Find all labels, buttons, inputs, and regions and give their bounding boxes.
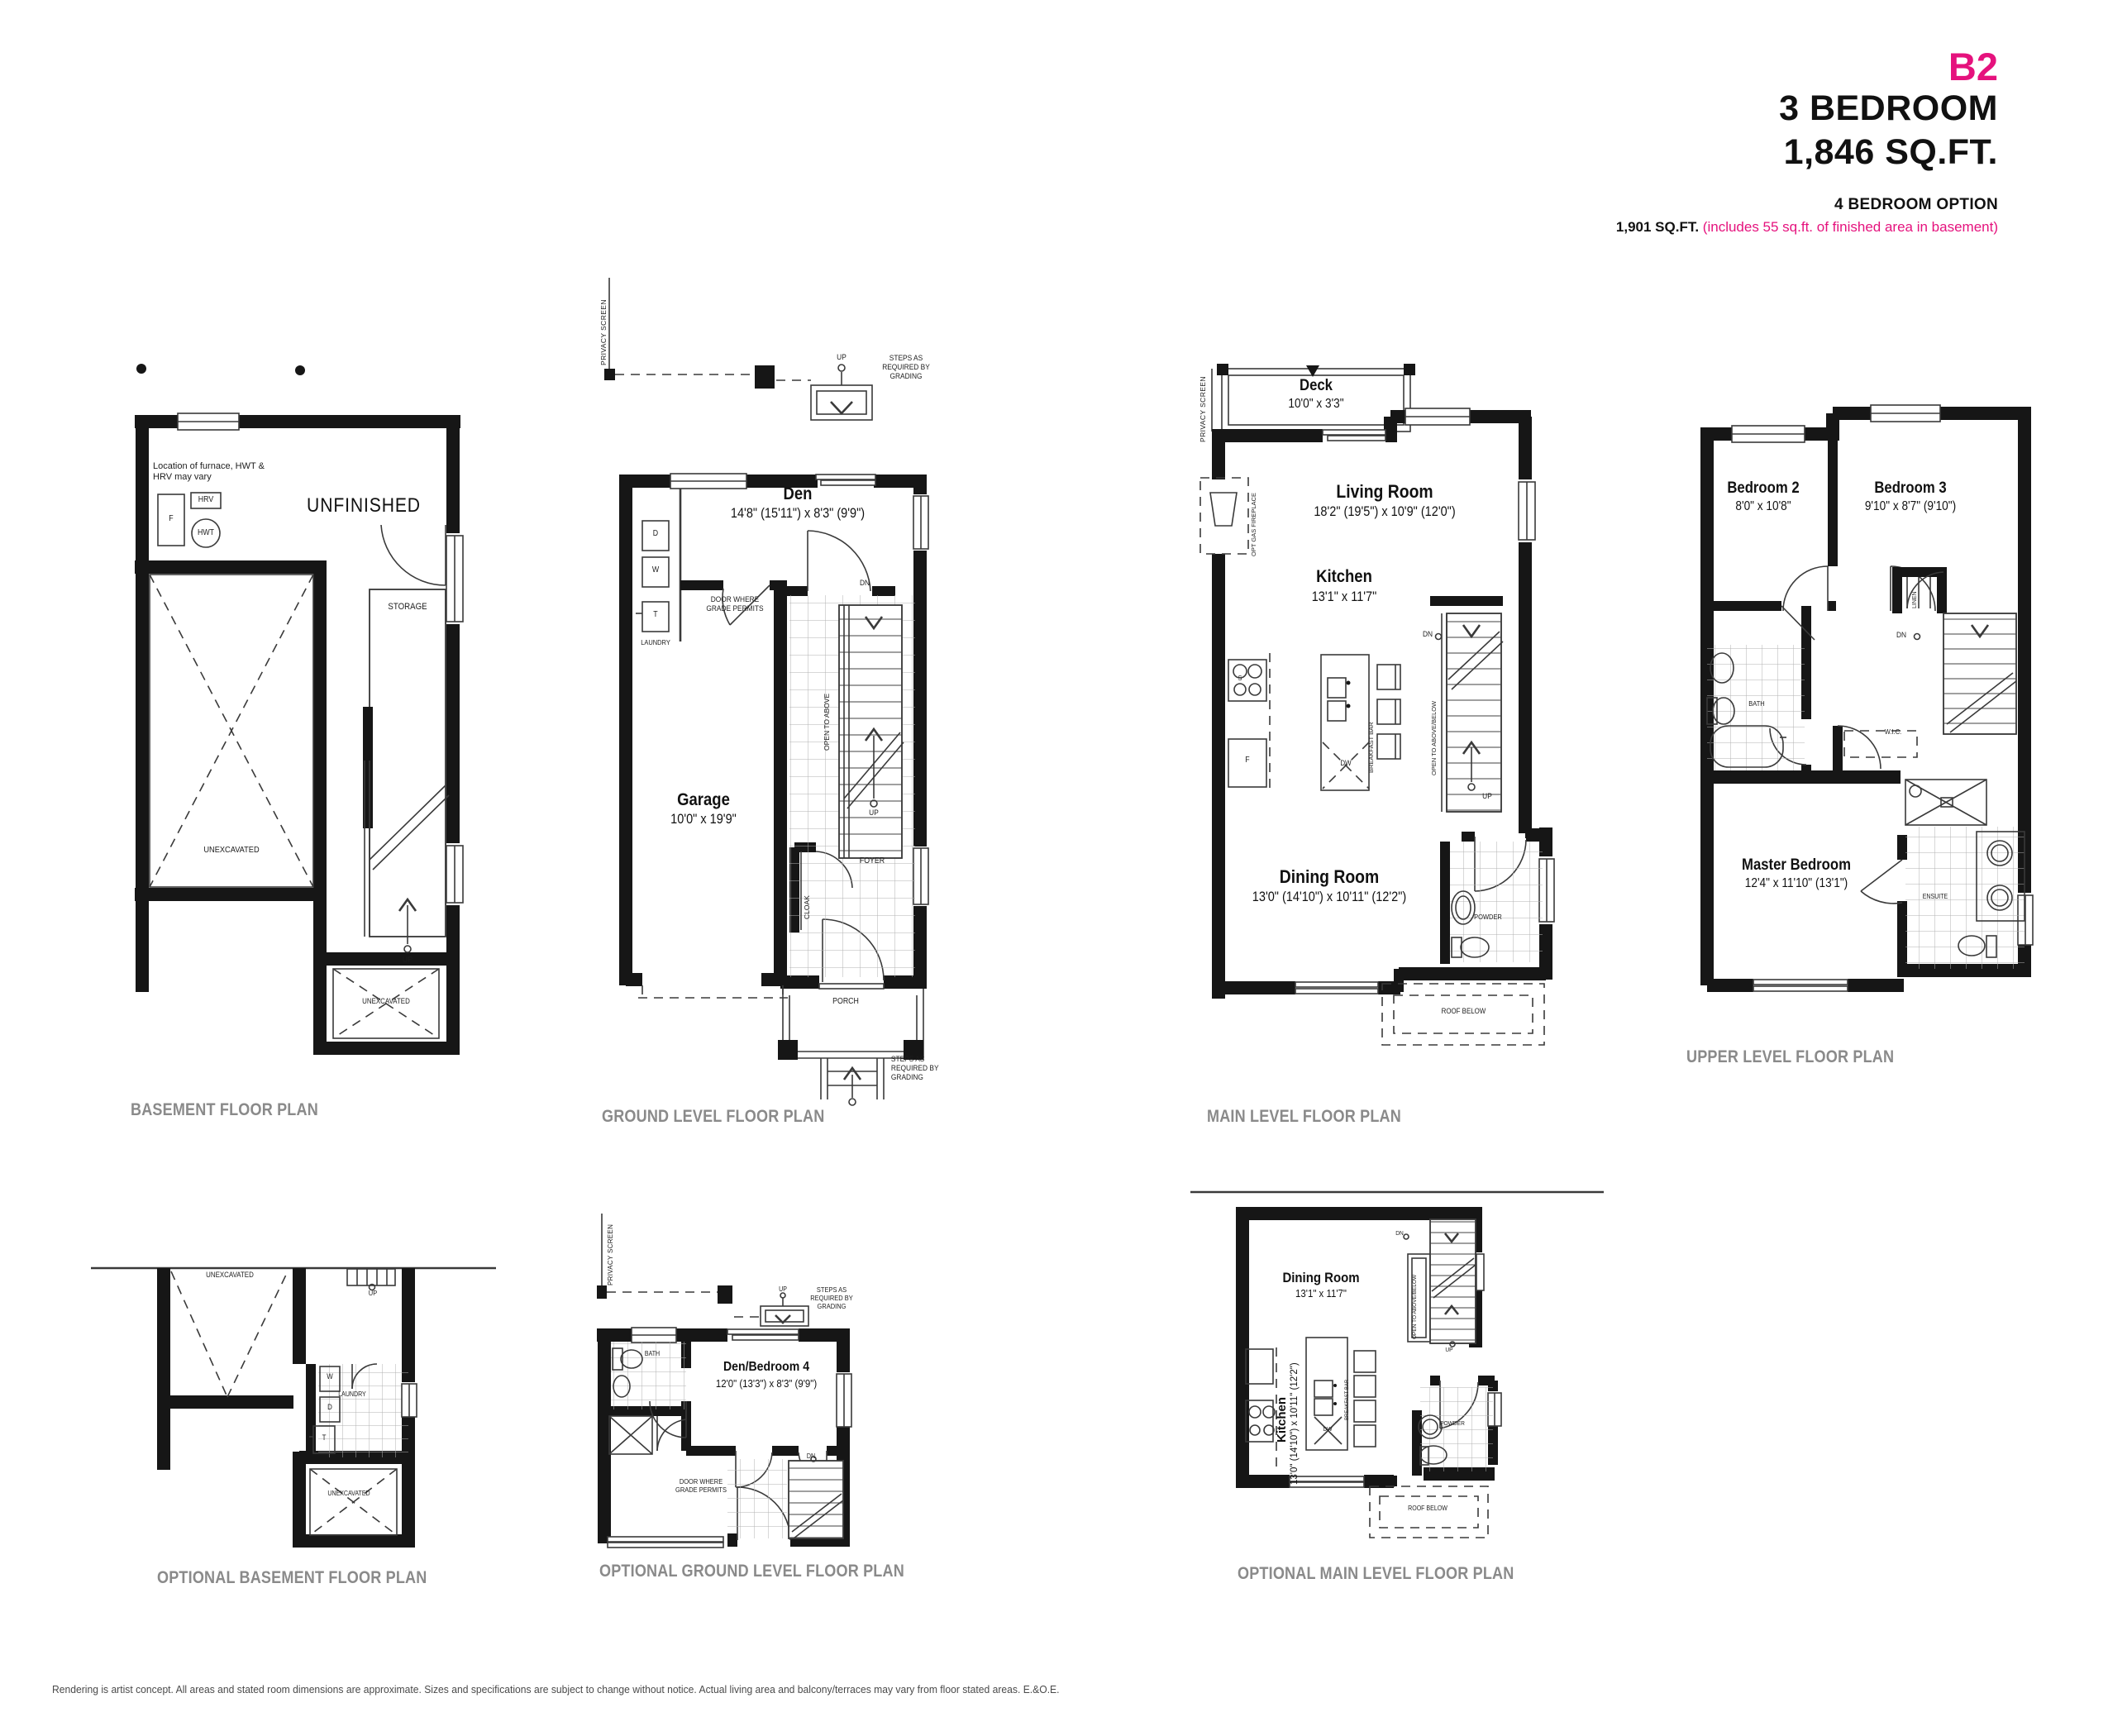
- optional-basement-floor-plan: UNEXCAVATED UP W D T LAUNDRY UNEXCAVATED: [91, 1266, 496, 1589]
- den-dims: 14'8" (15'11") x 8'3" (9'9"): [689, 506, 907, 522]
- dining-room-dims: 13'1" x 11'7": [1212, 1287, 1430, 1300]
- bedroom-count: 3 BEDROOM: [1616, 87, 1998, 130]
- privacy-screen-label: PRIVACY SCREEN: [599, 299, 608, 365]
- dishwasher-label: DW: [1336, 759, 1357, 767]
- unexcavated-upper-label: UNEXCAVATED: [193, 1271, 266, 1279]
- kitchen-dims: 13'1" x 11'7": [1235, 589, 1453, 605]
- dining-room-dims: 13'0" (14'10") x 10'11" (12'2"): [1220, 889, 1438, 905]
- steps-grading-label-bottom: STEPS AS REQUIRED BY GRADING: [891, 1055, 951, 1083]
- opt-main-plan-title: OPTIONAL MAIN LEVEL FLOOR PLAN: [1238, 1563, 1514, 1584]
- dryer-label: D: [644, 529, 667, 538]
- stairs-up: [347, 1269, 395, 1290]
- foyer-label: FOYER: [851, 856, 894, 866]
- upper-level-floor-plan: Bedroom 2 8'0" x 10'8" Bedroom 3 9'10" x…: [1699, 397, 2038, 1033]
- open-above-below-label: OPEN TO ABOVE/BELOW: [1412, 1275, 1418, 1339]
- fireplace: [1200, 478, 1248, 554]
- entry-steps: [761, 1293, 808, 1326]
- pin-dots: [136, 364, 305, 375]
- roof-below-label: ROOF BELOW: [1395, 1505, 1460, 1512]
- breakfast-bar-label: BREAKFAST BAR: [1345, 1380, 1350, 1420]
- wic-label: W.I.C.: [1872, 727, 1915, 736]
- kitchen-name: Kitchen: [1235, 567, 1453, 587]
- cloak-label: CLOAK: [803, 895, 811, 919]
- privacy-screen: [597, 1214, 761, 1317]
- ensuite-label: ENSUITE: [1914, 893, 1958, 900]
- garage-name: Garage: [594, 790, 813, 810]
- unexcavated-label: UNEXCAVATED: [188, 845, 275, 855]
- kitchen-name: Kitchen: [1275, 1397, 1289, 1443]
- powder-room: [1450, 842, 1543, 962]
- ground-plan-title: GROUND LEVEL FLOOR PLAN: [602, 1106, 824, 1127]
- living-room-name: Living Room: [1276, 481, 1494, 503]
- stove-label: S: [1236, 675, 1245, 682]
- option-note: (includes 55 sq.ft. of finished area in …: [1703, 219, 1998, 235]
- up-label: UP: [1476, 792, 1498, 801]
- front-steps: [821, 1058, 884, 1105]
- up-label-top: UP: [831, 353, 852, 362]
- unexcavated-area: [150, 575, 313, 887]
- opt-main-drawing: [1190, 1190, 1604, 1587]
- porch-label: PORCH: [824, 997, 868, 1006]
- option-area: 1,901 SQ.FT.: [1616, 219, 1699, 235]
- kitchen-dims: 13'0" (14'10") x 10'11" (12'2"): [1290, 1362, 1300, 1485]
- dn-label: DN: [854, 579, 875, 588]
- deck-dims: 10'0" x 3'3": [1207, 397, 1425, 412]
- den4-name: Den/Bedroom 4: [657, 1360, 875, 1375]
- door-grade-label: DOOR WHERE GRADE PERMITS: [668, 1477, 735, 1494]
- breakfast-bar-label: BREAKFAST BAR: [1367, 722, 1375, 773]
- kitchen-fixtures: [1246, 1338, 1376, 1469]
- laundry-label: LAUNDRY: [632, 638, 679, 646]
- open-to-above-label: OPEN TO ABOVE: [823, 694, 831, 751]
- deck-name: Deck: [1207, 377, 1425, 395]
- living-room-dims: 18'2" (19'5") x 10'9" (12'0"): [1276, 504, 1494, 520]
- square-footage: 1,846 SQ.FT.: [1616, 131, 1998, 174]
- steps-grading-label-top: STEPS AS REQUIRED BY GRADING: [876, 354, 936, 382]
- basement-plan-title: BASEMENT FLOOR PLAN: [131, 1099, 318, 1120]
- hall-stairs: [727, 1457, 843, 1538]
- dn-label: DN: [800, 1452, 822, 1460]
- roof-below: [1370, 1486, 1488, 1538]
- hrv-label: HRV: [193, 495, 219, 504]
- stairs-up: [839, 605, 904, 858]
- hwt-label: HWT: [193, 528, 219, 537]
- floorplan-sheet: B2 3 BEDROOM 1,846 SQ.FT. 4 BEDROOM OPTI…: [0, 0, 2108, 1736]
- unexcavated-dashes: [171, 1271, 288, 1397]
- upper-plan-title: UPPER LEVEL FLOOR PLAN: [1686, 1047, 1894, 1067]
- den-name: Den: [689, 484, 907, 504]
- main-plan-title: MAIN LEVEL FLOOR PLAN: [1207, 1106, 1401, 1127]
- washer-label: W: [321, 1372, 338, 1381]
- dishwasher-label: DW: [1317, 1425, 1338, 1433]
- opt-ground-plan-title: OPTIONAL GROUND LEVEL FLOOR PLAN: [599, 1561, 904, 1581]
- unexcavated-lower-label: UNEXCAVATED: [312, 1490, 385, 1497]
- model-code: B2: [1616, 46, 1998, 87]
- dryer-label: D: [321, 1403, 338, 1411]
- main-level-floor-plan: Deck 10'0" x 3'3" PRIVACY SCREEN Living …: [1199, 355, 1587, 1099]
- optional-main-level-floor-plan: Dining Room 13'1" x 11'7" DN OPEN TO ABO…: [1190, 1190, 1604, 1587]
- door-grade-label: DOOR WHERE GRADE PERMITS: [700, 595, 770, 613]
- opt-basement-plan-title: OPTIONAL BASEMENT FLOOR PLAN: [157, 1567, 427, 1588]
- dining-room-name: Dining Room: [1212, 1270, 1430, 1286]
- header: B2 3 BEDROOM 1,846 SQ.FT. 4 BEDROOM OPTI…: [1616, 46, 1998, 236]
- master-name: Master Bedroom: [1687, 856, 1905, 875]
- furnace-note: Location of furnace, HWT & HRV may vary: [153, 461, 281, 483]
- basement-floor-plan: Location of furnace, HWT & HRV may vary …: [128, 355, 467, 1083]
- ground-level-floor-plan: PRIVACY SCREEN UP STEPS AS REQUIRED BY G…: [599, 273, 947, 1108]
- stairs-up: [365, 525, 449, 952]
- main-plan-drawing: [1199, 355, 1587, 1099]
- open-above-below-label: OPEN TO ABOVE/BELOW: [1430, 701, 1438, 775]
- unexcavated-lower-label: UNEXCAVATED: [342, 997, 430, 1005]
- driveway-grade-line: [638, 985, 788, 998]
- dn-label: DN: [1390, 1229, 1409, 1237]
- fridge-label: F: [1242, 756, 1252, 765]
- linen-label: LINEN: [1912, 591, 1918, 608]
- bedroom3-dims: 9'10" x 8'7" (9'10"): [1801, 499, 2020, 514]
- washer-label: W: [644, 565, 667, 575]
- dining-room-name: Dining Room: [1220, 866, 1438, 888]
- window: [402, 1384, 417, 1417]
- up-label: UP: [1440, 1346, 1459, 1353]
- fireplace-label: OPT GAS FIREPLACE: [1250, 493, 1257, 556]
- storage-label: STORAGE: [377, 602, 438, 612]
- den4-dims: 12'0" (13'3") x 8'3" (9'9"): [657, 1377, 875, 1390]
- unfinished-label: UNFINISHED: [255, 494, 473, 517]
- up-label: UP: [772, 1285, 794, 1293]
- up-label-stairs: UP: [863, 808, 885, 818]
- roof-below-label: ROOF BELOW: [1442, 1007, 1486, 1015]
- tub-label: T: [315, 1433, 334, 1442]
- dn-label: DN: [1891, 631, 1912, 640]
- bath: [609, 1342, 686, 1454]
- bath-label: BATH: [634, 1350, 670, 1357]
- unexcavated-lower: [310, 1469, 397, 1535]
- disclaimer: Rendering is artist concept. All areas a…: [52, 1684, 1060, 1695]
- master-dims: 12'4" x 11'10" (13'1"): [1687, 876, 1905, 891]
- ground-plan-drawing: [599, 273, 947, 1108]
- privacy-screen-label: PRIVACY SCREEN: [607, 1224, 614, 1285]
- privacy-screen: [604, 278, 811, 389]
- laundry-label: LAUNDRY: [331, 1390, 374, 1398]
- steps-grading-label: STEPS AS REQUIRED BY GRADING: [805, 1285, 857, 1310]
- powder-label: POWDER: [1434, 1419, 1471, 1427]
- furnace-label: F: [166, 514, 176, 523]
- dn-label: DN: [1417, 630, 1438, 639]
- option-note-line: 1,901 SQ.FT. (includes 55 sq.ft. of fini…: [1616, 219, 1998, 236]
- bedroom3-name: Bedroom 3: [1801, 479, 2020, 498]
- up-label: UP: [397, 956, 418, 965]
- stairs: [1436, 613, 1504, 812]
- tub-label: T: [644, 610, 667, 619]
- privacy-screen-label: PRIVACY SCREEN: [1199, 376, 1207, 442]
- opt-basement-drawing: [91, 1266, 496, 1589]
- powder-label: POWDER: [1467, 913, 1510, 921]
- option-title: 4 BEDROOM OPTION: [1616, 196, 1998, 214]
- stairs-dn: [1907, 572, 2016, 734]
- optional-ground-level-floor-plan: PRIVACY SCREEN UP STEPS AS REQUIRED BY G…: [529, 1203, 918, 1591]
- bath-label: BATH: [1735, 699, 1779, 708]
- bath: [1707, 645, 1805, 770]
- entry-steps: [811, 365, 872, 420]
- garage-dims: 10'0" x 19'9": [594, 812, 813, 827]
- opt-ground-drawing: [529, 1203, 918, 1591]
- powder-room: [1419, 1387, 1493, 1471]
- up-label: UP: [362, 1289, 384, 1297]
